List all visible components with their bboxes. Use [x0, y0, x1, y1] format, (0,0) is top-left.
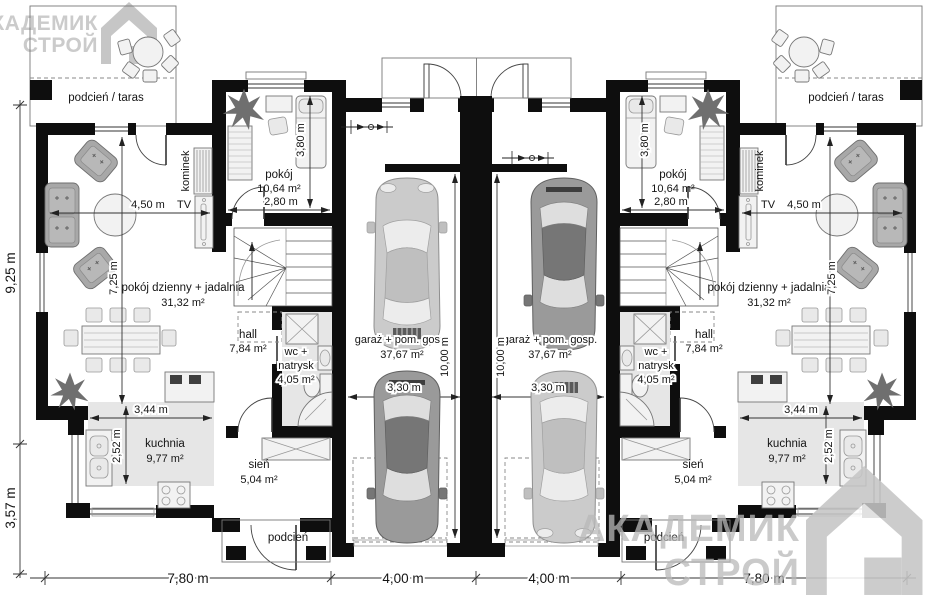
watermark-brand-line1: АКАДЕМИК	[0, 12, 98, 35]
dim-bed-length-left: 3,80 m	[295, 123, 307, 157]
dim-bottom-2: 4,00 m	[382, 571, 423, 586]
room-label-terrace-right: podcień / taras	[808, 92, 884, 104]
dim-living-depth-left: 7,25 m	[108, 261, 120, 295]
room-area-vestibule-left: 5,04 m²	[240, 474, 278, 486]
room-area-living-right: 31,32 m²	[747, 297, 791, 309]
room-label-wc-right-1: wc +	[644, 346, 668, 358]
dim-bedroom-width-left: 2,80 m	[264, 196, 298, 208]
room-label-living-left: pokój dzienny + jadalnia	[121, 282, 245, 294]
dim-living-width-left: 4,50 m	[131, 199, 165, 211]
room-area-hall-left: 7,84 m²	[229, 343, 267, 355]
room-label-garage-left: garaż + pom. gosp.	[355, 334, 449, 346]
dim-garage-length-left: 10,00 m	[439, 337, 451, 377]
annotation-tv-left: TV	[177, 199, 192, 211]
annotation-fireplace-right: kominek	[754, 150, 766, 191]
dim-garage-length-right: 10,00 m	[495, 337, 507, 377]
room-area-bedroom-left: 10,64 m²	[257, 183, 301, 195]
room-label-vestibule-left: sień	[248, 459, 269, 471]
annotation-tv-right: TV	[761, 199, 776, 211]
room-label-hall-right: hall	[695, 329, 713, 341]
room-label-terrace-left: podcień / taras	[68, 92, 144, 104]
room-area-wc-right: 4,05 m²	[637, 374, 675, 386]
floor-plan-drawing: АКАДЕМИК СТРОЙ	[0, 0, 927, 600]
room-label-kitchen-left: kuchnia	[145, 438, 185, 450]
watermark-brand-line2: СТРОЙ	[23, 33, 98, 57]
dim-kitchen-width-right: 3,44 m	[784, 404, 818, 416]
room-label-wc-left-2: natrysk	[278, 360, 314, 372]
room-label-bedroom-right: pokój	[659, 169, 687, 181]
dim-depth-bay: 3,57 m	[3, 487, 18, 528]
dim-kitchen-width-left: 3,44 m	[134, 404, 168, 416]
dim-bedroom-width-right: 2,80 m	[654, 196, 688, 208]
room-area-kitchen-left: 9,77 m²	[146, 453, 184, 465]
watermark-brand-line1-large: АКАДЕМИК	[578, 508, 800, 550]
room-label-hall-left: hall	[239, 329, 257, 341]
room-label-wc-left-1: wc +	[284, 346, 308, 358]
dim-bottom-1: 7,80 m	[167, 571, 208, 586]
watermark-brand-line2-large: СТРОЙ	[664, 549, 800, 594]
room-area-garage-right: 37,67 m²	[528, 349, 572, 361]
dim-garage-car-width-left: 3,30 m	[387, 382, 421, 394]
room-area-bedroom-right: 10,64 m²	[651, 183, 695, 195]
dim-living-depth-right: 7,25 m	[826, 261, 838, 295]
dim-living-width-right: 4,50 m	[787, 199, 821, 211]
room-area-wc-left: 4,05 m²	[277, 374, 315, 386]
room-area-kitchen-right: 9,77 m²	[768, 453, 806, 465]
car-left-bottom	[367, 371, 447, 543]
room-label-living-right: pokój dzienny + jadalnia	[707, 282, 831, 294]
dim-kitchen-depth-right: 2,52 m	[823, 429, 835, 463]
dim-bed-length-right: 3,80 m	[639, 123, 651, 157]
dim-garage-car-width-right: 3,30 m	[531, 382, 565, 394]
room-label-wc-right-2: natrysk	[638, 360, 674, 372]
car-left-top	[367, 178, 447, 350]
room-label-porch-left: podcień	[268, 532, 308, 544]
floor-plan-page: АКАДЕМИК СТРОЙ	[0, 0, 927, 600]
room-area-vestibule-right: 5,04 m²	[674, 474, 712, 486]
dim-depth-main: 9,25 m	[3, 252, 18, 293]
room-label-garage-right: garaż + pom. gosp.	[503, 334, 597, 346]
room-label-vestibule-right: sień	[682, 459, 703, 471]
dim-bottom-3: 4,00 m	[528, 571, 569, 586]
room-area-living-left: 31,32 m²	[161, 297, 205, 309]
annotation-fireplace-left: kominek	[180, 150, 192, 191]
room-area-garage-left: 37,67 m²	[380, 349, 424, 361]
car-right-top	[524, 178, 604, 350]
room-label-kitchen-right: kuchnia	[767, 438, 807, 450]
dim-kitchen-depth-left: 2,52 m	[111, 429, 123, 463]
room-label-bedroom-left: pokój	[265, 169, 293, 181]
room-area-hall-right: 7,84 m²	[685, 343, 723, 355]
